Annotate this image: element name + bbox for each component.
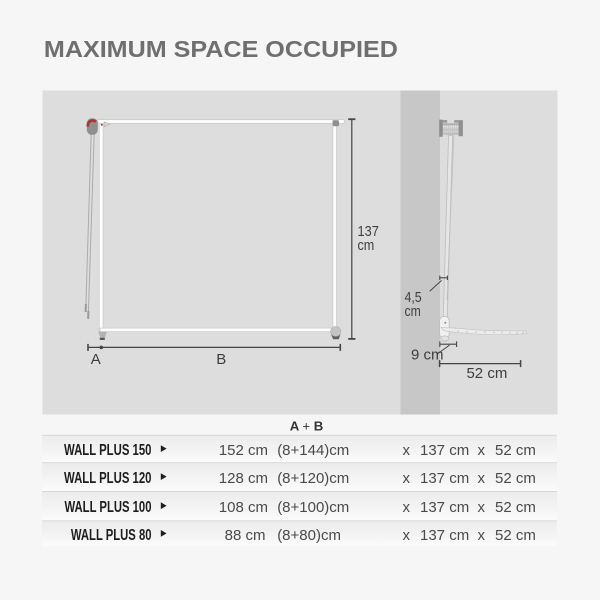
svg-text:137 cm: 137 cm bbox=[420, 442, 469, 459]
svg-text:152 cm: 152 cm bbox=[219, 442, 268, 459]
svg-text:x: x bbox=[403, 442, 411, 459]
svg-text:x: x bbox=[403, 470, 411, 487]
svg-text:88 cm: 88 cm bbox=[225, 527, 266, 544]
svg-text:WALL PLUS 120: WALL PLUS 120 bbox=[64, 470, 152, 487]
svg-text:B: B bbox=[216, 351, 226, 368]
svg-text:A + B: A + B bbox=[290, 418, 324, 433]
svg-text:MAXIMUM SPACE OCCUPIED: MAXIMUM SPACE OCCUPIED bbox=[44, 36, 398, 62]
svg-text:137 cm: 137 cm bbox=[420, 499, 469, 516]
svg-text:cm: cm bbox=[405, 304, 421, 320]
svg-text:52 cm: 52 cm bbox=[495, 442, 536, 459]
svg-text:WALL PLUS 80: WALL PLUS 80 bbox=[71, 527, 152, 544]
svg-text:(8+80)cm: (8+80)cm bbox=[277, 527, 341, 544]
svg-text:9 cm: 9 cm bbox=[411, 347, 444, 364]
svg-text:(8+144)cm: (8+144)cm bbox=[277, 442, 349, 459]
svg-text:52 cm: 52 cm bbox=[466, 365, 507, 382]
svg-text:(8+100)cm: (8+100)cm bbox=[277, 499, 349, 516]
svg-text:cm: cm bbox=[358, 237, 375, 254]
svg-text:WALL PLUS 150: WALL PLUS 150 bbox=[64, 442, 152, 459]
svg-text:137 cm: 137 cm bbox=[420, 470, 469, 487]
svg-text:128 cm: 128 cm bbox=[219, 470, 268, 487]
svg-text:137 cm: 137 cm bbox=[420, 527, 469, 544]
svg-text:52 cm: 52 cm bbox=[495, 499, 536, 516]
svg-text:x: x bbox=[478, 499, 486, 516]
svg-text:52 cm: 52 cm bbox=[495, 527, 536, 544]
svg-text:x: x bbox=[403, 527, 411, 544]
svg-text:108 cm: 108 cm bbox=[219, 499, 268, 516]
svg-text:WALL PLUS 100: WALL PLUS 100 bbox=[65, 499, 152, 516]
svg-text:x: x bbox=[478, 527, 486, 544]
svg-text:52 cm: 52 cm bbox=[495, 470, 536, 487]
svg-text:A: A bbox=[91, 351, 101, 368]
svg-text:x: x bbox=[403, 499, 411, 516]
svg-text:(8+120)cm: (8+120)cm bbox=[277, 470, 349, 487]
svg-text:x: x bbox=[478, 470, 486, 487]
svg-text:x: x bbox=[478, 442, 486, 459]
